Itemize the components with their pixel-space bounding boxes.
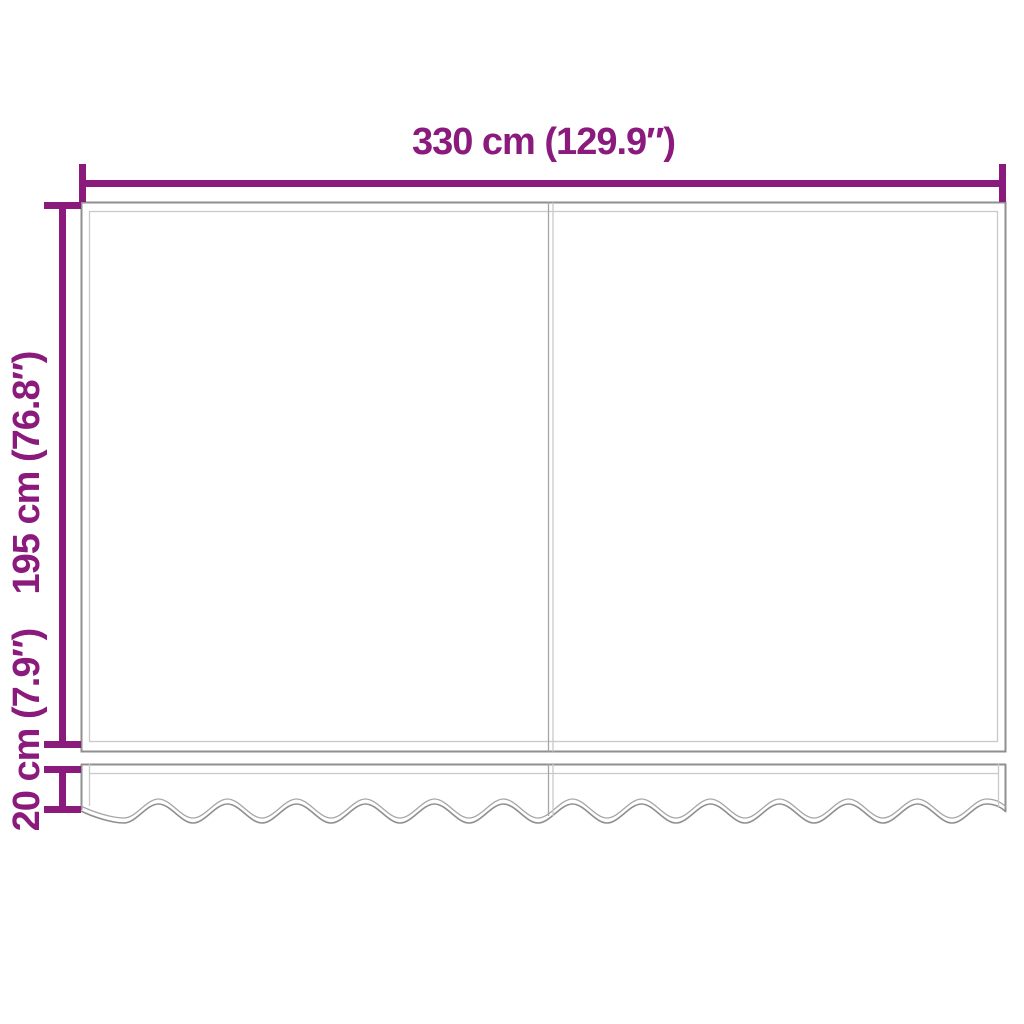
width-dimension-line [82, 180, 1003, 187]
valance-dimension-tick-bottom [44, 806, 81, 813]
valance-wave-outer-edge [81, 804, 1006, 823]
height-dimension-tick-bottom [44, 741, 81, 748]
main-panel-inner-seam [90, 212, 998, 742]
height-dimension-line [59, 202, 66, 748]
width-dimension-tick-right [999, 164, 1006, 202]
dimension-diagram: 330 cm (129.9″) 195 cm (76.8″) 20 cm (7.… [0, 0, 1024, 1024]
valance-dimension-tick-top [44, 766, 81, 773]
width-dimension-label: 330 cm (129.9″) [81, 121, 1006, 163]
width-dimension-tick-left [79, 164, 86, 202]
main-panel-outline [82, 203, 1006, 752]
valance-strip [81, 764, 1006, 823]
fabric-main-panel [82, 203, 1006, 752]
height-dimension-tick-top [44, 202, 81, 209]
valance-dimension-label: 20 cm (7.9″) [6, 450, 48, 1010]
